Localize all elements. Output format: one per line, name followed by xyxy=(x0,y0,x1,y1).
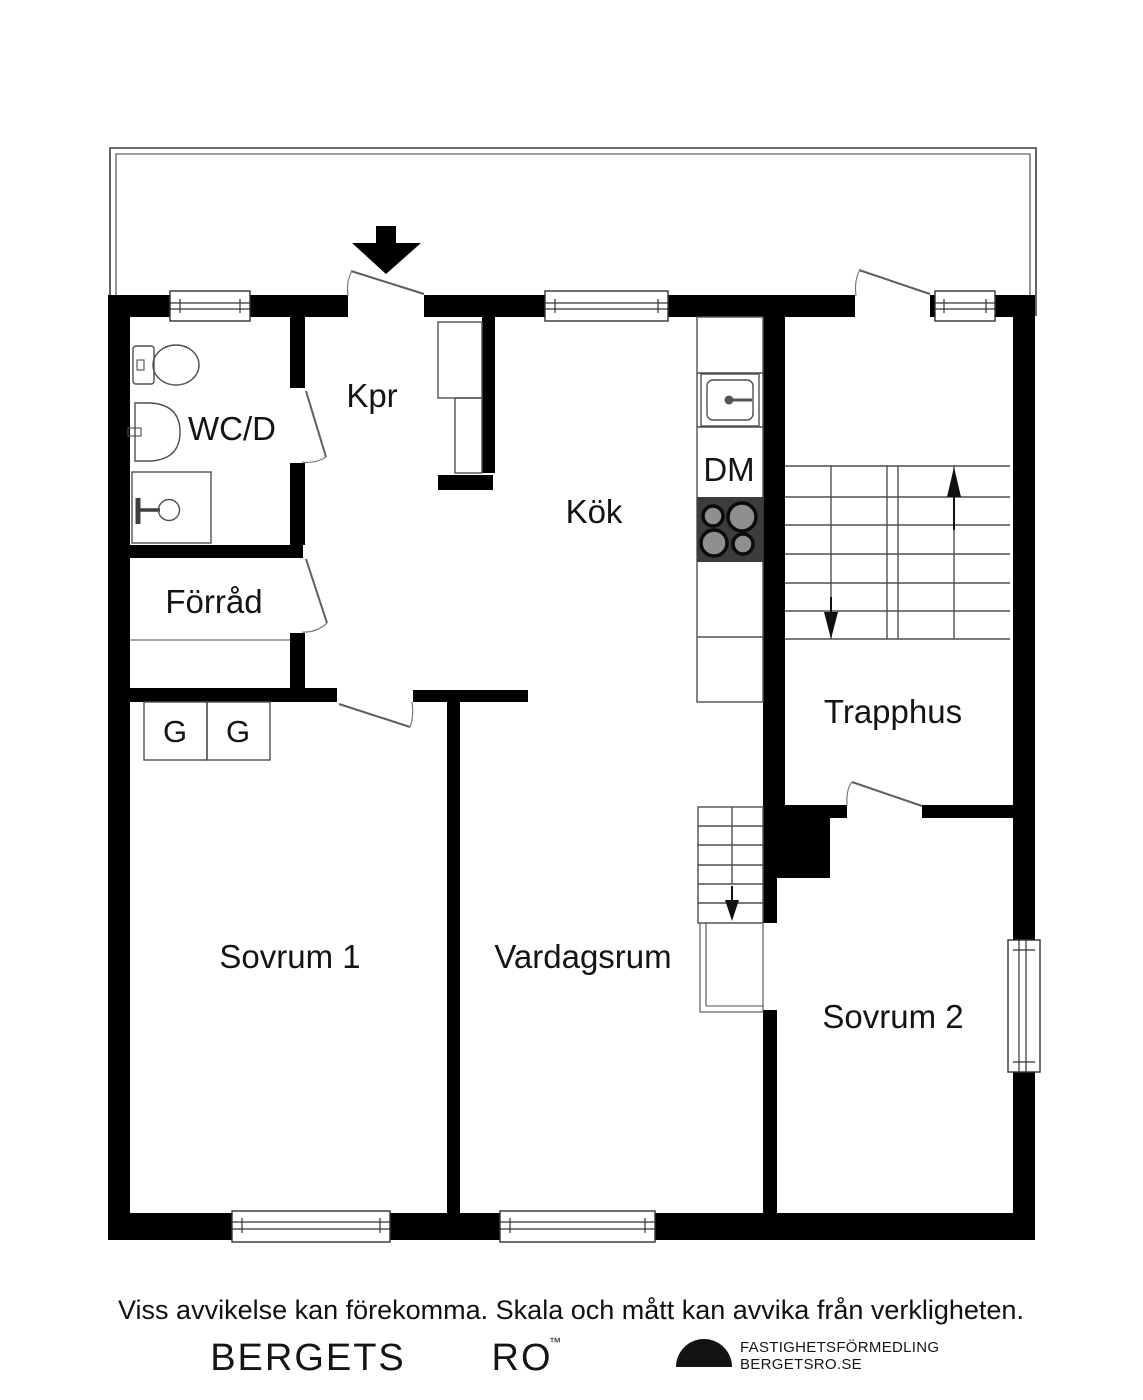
wcd-door-swing xyxy=(302,391,326,462)
washbasin-icon xyxy=(128,403,180,461)
wall-wcd-bottom xyxy=(130,545,303,558)
wall-forrad-right xyxy=(290,633,305,690)
window xyxy=(935,291,995,321)
floorplan-svg: WC/D Kpr Kök DM Förråd G G Sovrum 1 Vard… xyxy=(0,0,1143,1400)
window xyxy=(232,1211,390,1242)
shower-icon xyxy=(132,472,211,543)
room-label-sovrum1: Sovrum 1 xyxy=(219,938,360,975)
toilet-icon xyxy=(133,345,199,385)
wall-block xyxy=(763,805,830,878)
floorplan-canvas: WC/D Kpr Kök DM Förråd G G Sovrum 1 Vard… xyxy=(0,0,1143,1400)
brand-dome-icon xyxy=(676,1339,732,1367)
stairs-up-arrow-icon xyxy=(947,467,961,530)
label-wardrobe-left: G xyxy=(163,714,187,749)
agency-line2: BERGETSRO.SE xyxy=(740,1356,862,1373)
brand-word-ro: RO xyxy=(492,1337,553,1379)
entrance-arrow-icon xyxy=(352,226,421,274)
room-label-vardagsrum: Vardagsrum xyxy=(494,938,671,975)
window xyxy=(1008,940,1040,1072)
kitchen-sink-icon xyxy=(701,374,759,426)
stove-icon xyxy=(697,497,763,562)
wall-sovrum2-left-a xyxy=(763,878,777,923)
room-label-kpr: Kpr xyxy=(346,377,397,414)
wall-bottom-b xyxy=(390,1213,500,1240)
wall-trapphus-bottom-b xyxy=(922,805,1013,818)
room-label-trapphus: Trapphus xyxy=(824,693,962,730)
wall-kpr-right xyxy=(482,317,495,473)
room-label-sovrum2: Sovrum 2 xyxy=(822,998,963,1035)
agency-line1: FASTIGHETSFÖRMEDLING xyxy=(740,1338,939,1356)
wall-top-b xyxy=(250,295,348,317)
forrad-door-swing xyxy=(302,559,327,632)
wall-kpr-stub xyxy=(438,475,493,490)
trademark-symbol: ™ xyxy=(549,1335,561,1349)
window xyxy=(500,1211,655,1242)
wall-hall-bottom xyxy=(130,688,337,702)
window xyxy=(170,291,250,321)
wall-kitchen-trapphus xyxy=(763,317,785,805)
window xyxy=(545,291,668,321)
room-labels: WC/D Kpr Kök DM Förråd G G Sovrum 1 Vard… xyxy=(163,377,964,1035)
wall-bottom-a xyxy=(108,1213,232,1240)
trapphus-stairs xyxy=(785,466,1010,639)
wall-left xyxy=(108,295,130,1240)
wall-wcd-right-upper xyxy=(290,317,305,388)
label-wardrobe-right: G xyxy=(226,714,250,749)
brand-word-bergets: BERGETS xyxy=(210,1337,406,1379)
stairs-landing xyxy=(700,923,763,1012)
footer: Viss avvikelse kan förekomma. Skala och … xyxy=(118,1295,1024,1379)
room-label-kok: Kök xyxy=(566,493,623,530)
room-label-wcd: WC/D xyxy=(188,410,276,447)
kpr-wardrobe xyxy=(438,322,482,473)
kitchen-counter xyxy=(697,317,763,702)
label-dishwasher: DM xyxy=(703,451,754,488)
windows xyxy=(170,291,1040,1242)
sovrum1-door-swing xyxy=(339,702,413,727)
wall-top-c xyxy=(424,295,545,317)
room-label-forrad: Förråd xyxy=(165,583,262,620)
wall-tbar xyxy=(413,690,528,702)
stairs-down-arrow-icon xyxy=(725,886,739,921)
wall-sovrum1-vardagsrum xyxy=(447,702,460,1213)
internal-stairs xyxy=(698,807,763,1012)
wall-wcd-right-lower xyxy=(290,463,305,545)
wall-trapphus-bottom-a xyxy=(830,805,847,818)
trapphus-entrance-door-swing xyxy=(856,270,931,296)
disclaimer-text: Viss avvikelse kan förekomma. Skala och … xyxy=(118,1295,1024,1325)
wall-bottom-c xyxy=(655,1213,1035,1240)
sovrum2-door-swing xyxy=(847,782,922,806)
stairs-down-arrow-icon xyxy=(824,597,838,639)
entrance-door-swing xyxy=(348,271,425,296)
wall-top-d xyxy=(668,295,855,317)
wall-sovrum2-left-b xyxy=(763,1010,777,1213)
wall-right-upper xyxy=(1013,295,1035,940)
wall-right-lower xyxy=(1013,1072,1035,1213)
